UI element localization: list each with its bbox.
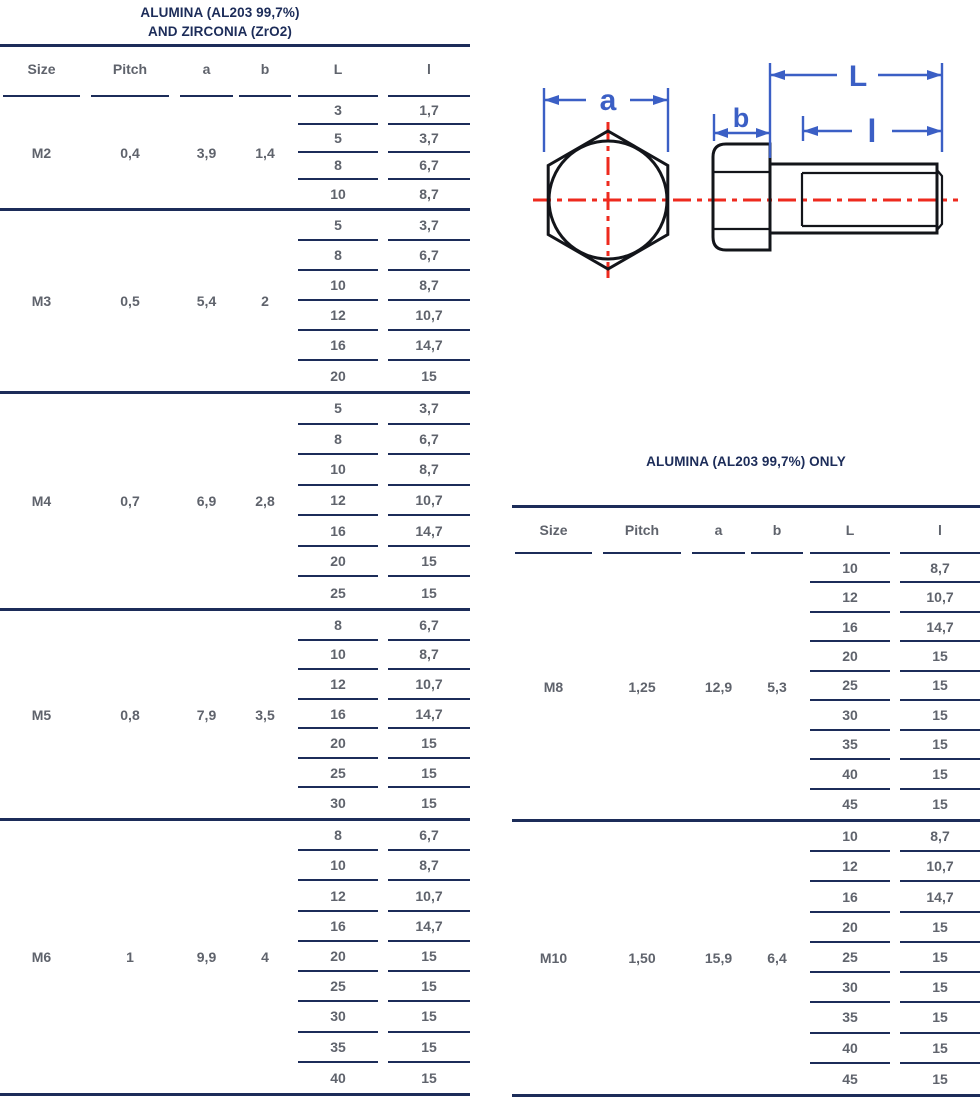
cell-L: 12: [298, 670, 378, 700]
cell-l: 15: [900, 731, 980, 760]
cell-l: 10,7: [900, 583, 980, 612]
cell-L: 25: [810, 943, 890, 973]
table-row: 1614,7: [0, 700, 470, 730]
cell-l: 15: [388, 547, 470, 578]
cell-l: 15: [388, 1063, 470, 1093]
cell-L: 8: [298, 821, 378, 851]
table-header-row: SizePitchabLl: [512, 508, 980, 554]
cell-L: 16: [298, 331, 378, 361]
cell-L: 5: [298, 211, 378, 241]
cell-l: 8,7: [388, 271, 470, 301]
cell-L: 12: [810, 852, 890, 882]
cell-L: 10: [810, 554, 890, 583]
cell-L: 30: [298, 1002, 378, 1032]
table-row: 3015: [512, 973, 980, 1003]
cell-L: 12: [810, 583, 890, 612]
cell-l: 10,7: [388, 670, 470, 700]
cell-L: 10: [298, 455, 378, 486]
table-row: 2515: [512, 672, 980, 701]
cell-l: 15: [900, 943, 980, 973]
table-row: 1614,7: [0, 516, 470, 547]
column-header-l: l: [388, 55, 470, 83]
table-row: 108,7: [0, 180, 470, 208]
table-row: 108,7: [512, 554, 980, 583]
table-alumina-only: ALUMINA (AL203 99,7%) ONLY SizePitchabLl…: [512, 0, 980, 1104]
table-row: 53,7: [0, 394, 470, 425]
table-row: 1614,7: [512, 882, 980, 912]
table-row: 3515: [0, 1033, 470, 1063]
column-header-Size: Size: [515, 516, 592, 544]
cell-L: 20: [298, 729, 378, 759]
cell-L: 20: [298, 942, 378, 972]
cell-L: 40: [810, 760, 890, 789]
cell-l: 8,7: [388, 851, 470, 881]
cell-l: 15: [900, 790, 980, 819]
cell-l: 3,7: [388, 211, 470, 241]
cell-l: 8,7: [388, 455, 470, 486]
size-group-M10: M101,5015,96,4108,71210,71614,7201525153…: [512, 822, 980, 1097]
cell-l: 3,7: [388, 394, 470, 425]
table-row: 53,7: [0, 211, 470, 241]
table-row: 4015: [512, 1034, 980, 1064]
cell-l: 8,7: [388, 641, 470, 671]
table-alumina-and-zirconia: ALUMINA (AL203 99,7%) AND ZIRCONIA (ZrO2…: [0, 0, 470, 1104]
table-row: 108,7: [0, 641, 470, 671]
size-group-M2: M20,43,91,431,753,786,7108,7: [0, 97, 470, 211]
table-row: 4015: [512, 760, 980, 789]
cell-l: 1,7: [388, 97, 470, 125]
column-header-a: a: [692, 516, 745, 544]
cell-l: 8,7: [900, 554, 980, 583]
cell-L: 30: [810, 701, 890, 730]
cell-L: 40: [810, 1034, 890, 1064]
table-row: 108,7: [0, 271, 470, 301]
table-row: 2015: [512, 913, 980, 943]
cell-L: 45: [810, 790, 890, 819]
cell-l: 15: [388, 942, 470, 972]
table-row: 86,7: [0, 821, 470, 851]
size-group-M3: M30,55,4253,786,7108,71210,71614,72015: [0, 211, 470, 394]
table-title: ALUMINA (AL203 99,7%) AND ZIRCONIA (ZrO2…: [0, 3, 440, 41]
cell-L: 8: [298, 611, 378, 641]
column-header-Size: Size: [3, 55, 80, 83]
cell-l: 6,7: [388, 821, 470, 851]
cell-L: 8: [298, 241, 378, 271]
cell-L: 20: [298, 547, 378, 578]
cell-L: 16: [298, 912, 378, 942]
table-row: 4515: [512, 790, 980, 819]
table-row: 1210,7: [512, 583, 980, 612]
cell-L: 16: [810, 882, 890, 912]
cell-L: 12: [298, 301, 378, 331]
table-title: ALUMINA (AL203 99,7%) ONLY: [512, 452, 980, 471]
cell-l: 14,7: [900, 613, 980, 642]
cell-l: 8,7: [388, 180, 470, 208]
cell-L: 25: [298, 972, 378, 1002]
table-row: 86,7: [0, 153, 470, 181]
table-row: 1614,7: [0, 912, 470, 942]
table-row: 1614,7: [0, 331, 470, 361]
table-title-line1: ALUMINA (AL203 99,7%) ONLY: [512, 452, 980, 471]
cell-L: 16: [298, 516, 378, 547]
cell-L: 12: [298, 881, 378, 911]
cell-L: 40: [298, 1063, 378, 1093]
cell-l: 15: [388, 577, 470, 608]
table-header-row: SizePitchabLl: [0, 47, 470, 97]
cell-l: 15: [388, 361, 470, 391]
table-row: 1210,7: [0, 301, 470, 331]
table-row: 1210,7: [512, 852, 980, 882]
cell-L: 10: [298, 180, 378, 208]
table-row: 2015: [0, 547, 470, 578]
table-row: 1210,7: [0, 486, 470, 517]
column-header-b: b: [239, 55, 291, 83]
cell-l: 14,7: [900, 882, 980, 912]
cell-l: 15: [900, 701, 980, 730]
column-header-b: b: [751, 516, 803, 544]
cell-l: 10,7: [388, 486, 470, 517]
length-rows: 31,753,786,7108,7: [0, 97, 470, 208]
table-row: 31,7: [0, 97, 470, 125]
table-row: 53,7: [0, 125, 470, 153]
table-row: 2015: [512, 642, 980, 671]
cell-l: 14,7: [388, 700, 470, 730]
length-rows: 53,786,7108,71210,71614,720152515: [0, 394, 470, 608]
cell-L: 12: [298, 486, 378, 517]
cell-L: 25: [298, 759, 378, 789]
cell-L: 35: [810, 731, 890, 760]
table-row: 86,7: [0, 611, 470, 641]
size-group-M8: M81,2512,95,3108,71210,71614,72015251530…: [512, 554, 980, 822]
cell-l: 15: [388, 759, 470, 789]
table-row: 1614,7: [512, 613, 980, 642]
table-body: M20,43,91,431,753,786,7108,7M30,55,4253,…: [0, 97, 470, 1096]
cell-L: 25: [810, 672, 890, 701]
table-row: 3515: [512, 731, 980, 760]
length-rows: 108,71210,71614,720152515301535154015451…: [512, 554, 980, 819]
table-row: 2015: [0, 942, 470, 972]
table-row: 2515: [0, 577, 470, 608]
cell-L: 16: [810, 613, 890, 642]
table-row: 2515: [512, 943, 980, 973]
table-row: 3015: [512, 701, 980, 730]
cell-L: 10: [298, 271, 378, 301]
table-row: 2015: [0, 729, 470, 759]
cell-L: 45: [810, 1064, 890, 1094]
cell-l: 15: [900, 913, 980, 943]
cell-l: 6,7: [388, 241, 470, 271]
cell-l: 15: [900, 1003, 980, 1033]
cell-l: 15: [900, 1034, 980, 1064]
column-header-Pitch: Pitch: [603, 516, 681, 544]
length-rows: 86,7108,71210,71614,7201525153015: [0, 611, 470, 818]
cell-l: 15: [900, 973, 980, 1003]
cell-L: 35: [298, 1033, 378, 1063]
cell-l: 6,7: [388, 611, 470, 641]
column-header-Pitch: Pitch: [91, 55, 169, 83]
cell-L: 10: [298, 851, 378, 881]
table-title-line2: AND ZIRCONIA (ZrO2): [0, 22, 440, 41]
cell-l: 15: [388, 729, 470, 759]
cell-l: 15: [388, 1002, 470, 1032]
cell-l: 3,7: [388, 125, 470, 153]
cell-l: 15: [900, 642, 980, 671]
table-row: 4015: [0, 1063, 470, 1093]
cell-L: 5: [298, 394, 378, 425]
cell-L: 20: [810, 913, 890, 943]
table-row: 1210,7: [0, 670, 470, 700]
cell-L: 8: [298, 153, 378, 181]
cell-l: 10,7: [900, 852, 980, 882]
cell-L: 10: [810, 822, 890, 852]
cell-L: 30: [810, 973, 890, 1003]
cell-L: 35: [810, 1003, 890, 1033]
size-group-M6: M619,9486,7108,71210,71614,7201525153015…: [0, 821, 470, 1096]
table-row: 2015: [0, 361, 470, 391]
table-row: 2515: [0, 972, 470, 1002]
cell-L: 16: [298, 700, 378, 730]
table-row: 3015: [0, 788, 470, 818]
cell-l: 8,7: [900, 822, 980, 852]
cell-l: 15: [388, 1033, 470, 1063]
cell-L: 20: [298, 361, 378, 391]
cell-l: 10,7: [388, 881, 470, 911]
cell-l: 14,7: [388, 912, 470, 942]
cell-L: 30: [298, 788, 378, 818]
column-header-l: l: [900, 516, 980, 544]
cell-l: 14,7: [388, 331, 470, 361]
table-row: 3015: [0, 1002, 470, 1032]
column-header-L: L: [298, 55, 378, 83]
cell-l: 15: [900, 760, 980, 789]
cell-L: 3: [298, 97, 378, 125]
cell-l: 6,7: [388, 425, 470, 456]
table-row: 108,7: [0, 851, 470, 881]
table-row: 1210,7: [0, 881, 470, 911]
cell-L: 25: [298, 577, 378, 608]
cell-l: 6,7: [388, 153, 470, 181]
length-rows: 86,7108,71210,71614,72015251530153515401…: [0, 821, 470, 1093]
length-rows: 53,786,7108,71210,71614,72015: [0, 211, 470, 391]
table-body: M81,2512,95,3108,71210,71614,72015251530…: [512, 554, 980, 1097]
cell-L: 10: [298, 641, 378, 671]
table-row: 108,7: [0, 455, 470, 486]
cell-l: 15: [900, 672, 980, 701]
cell-L: 20: [810, 642, 890, 671]
size-group-M4: M40,76,92,853,786,7108,71210,71614,72015…: [0, 394, 470, 611]
cell-l: 15: [388, 972, 470, 1002]
table-row: 86,7: [0, 425, 470, 456]
column-header-L: L: [810, 516, 890, 544]
table-row: 108,7: [512, 822, 980, 852]
table-row: 86,7: [0, 241, 470, 271]
cell-l: 15: [388, 788, 470, 818]
cell-l: 10,7: [388, 301, 470, 331]
size-group-M5: M50,87,93,586,7108,71210,71614,720152515…: [0, 611, 470, 821]
column-header-a: a: [180, 55, 233, 83]
cell-l: 14,7: [388, 516, 470, 547]
cell-L: 5: [298, 125, 378, 153]
cell-L: 8: [298, 425, 378, 456]
table-row: 2515: [0, 759, 470, 789]
table-row: 4515: [512, 1064, 980, 1094]
table-row: 3515: [512, 1003, 980, 1033]
cell-l: 15: [900, 1064, 980, 1094]
length-rows: 108,71210,71614,720152515301535154015451…: [512, 822, 980, 1094]
table-title-line1: ALUMINA (AL203 99,7%): [0, 3, 440, 22]
